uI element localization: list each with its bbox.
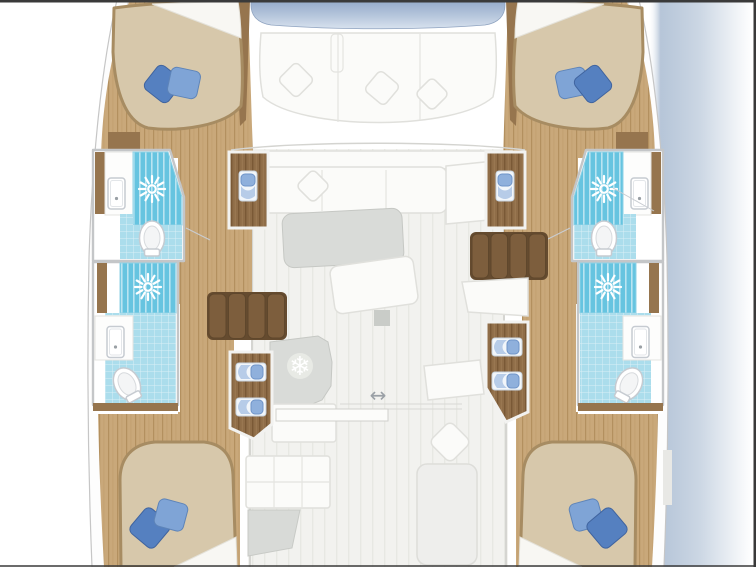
shower <box>120 263 176 313</box>
forward-lounge-sofa <box>260 33 497 123</box>
starboard-aft-bathroom <box>578 262 663 414</box>
sliding-door-arrow-icon: ↔ <box>370 383 387 407</box>
towel-icon <box>492 372 522 390</box>
floorplan-image: ❄ ↔ <box>0 0 756 567</box>
sink <box>632 327 649 358</box>
starboard-desk <box>462 278 528 316</box>
port-aft-bathroom <box>93 262 178 414</box>
sink <box>107 327 124 358</box>
towel-icon <box>239 171 257 201</box>
catamaran-floorplan: ❄ ↔ <box>0 0 756 567</box>
sink <box>108 178 125 209</box>
hull-fitting <box>663 450 672 505</box>
table-leg <box>374 310 390 326</box>
cockpit-bench <box>424 360 484 400</box>
saloon-sofa-seat <box>257 167 447 213</box>
towel-icon <box>236 398 266 416</box>
towel-icon <box>496 171 514 201</box>
aft-starboard-berth <box>519 442 636 567</box>
toilet <box>592 221 617 256</box>
refrigerator-icon: ❄ <box>289 352 311 382</box>
forward-starboard-berth <box>514 1 643 129</box>
sink <box>631 178 648 209</box>
bow-window <box>251 0 505 29</box>
galley-lockers <box>246 456 330 508</box>
towel-icon <box>492 338 522 356</box>
image-border-top <box>0 0 756 3</box>
port-staircase <box>207 292 287 340</box>
starboard-staircase <box>470 232 548 280</box>
forward-port-berth <box>113 1 242 129</box>
bed-pillow <box>166 66 201 100</box>
toilet <box>140 221 165 256</box>
starboard-aft-corridor-floor <box>522 304 576 414</box>
towel-icon <box>236 363 266 381</box>
shower <box>580 263 636 313</box>
cockpit-lounger <box>417 464 477 565</box>
aft-port-berth <box>120 442 237 567</box>
door-panel <box>276 409 388 421</box>
port-wardrobe <box>230 352 272 439</box>
